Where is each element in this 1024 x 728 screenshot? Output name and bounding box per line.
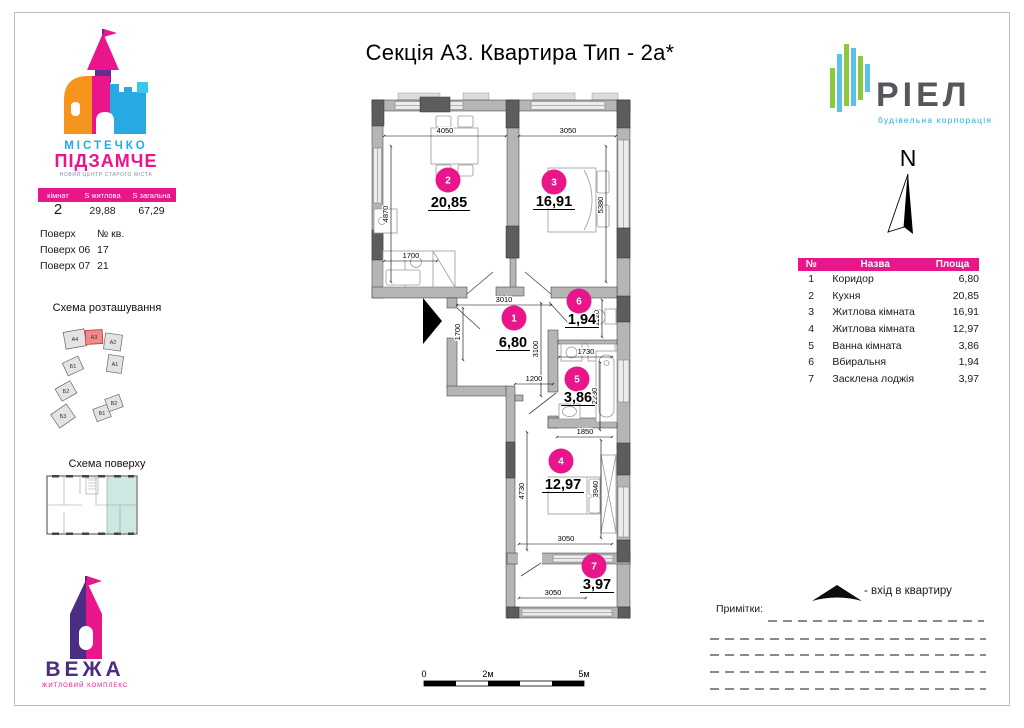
legend-header-num: №: [798, 258, 824, 271]
dim-label: 3010: [496, 295, 513, 304]
pillow: [597, 171, 609, 193]
block-label: В1: [99, 411, 106, 417]
room-legend-table: № Назва Площа 1Коридор6,80 2Кухня20,85 3…: [798, 258, 979, 387]
podzamche-tagline: НОВИЙ ЦЕНТР СТАРОГО МІСТА: [30, 172, 182, 178]
dim-label: 3940: [591, 481, 600, 498]
dim-label: 1200: [526, 374, 543, 383]
notes-line: [710, 671, 986, 673]
vezha-name: ВЕЖА: [28, 658, 142, 682]
riel-logo: РІЕЛ будівельна корпорація: [826, 42, 1001, 137]
scale-2m: 2м: [482, 669, 493, 679]
dim-label: 4050: [437, 126, 454, 135]
summary-header-rooms: кімнат: [38, 191, 78, 200]
block-label: А1: [112, 362, 119, 368]
scale-5m: 5м: [578, 669, 589, 679]
chair: [458, 116, 473, 127]
svg-text:1: 1: [511, 314, 517, 325]
legend-header-name: Назва: [824, 258, 926, 271]
floor-scheme-label: Схема поверху: [32, 458, 182, 470]
svg-text:7: 7: [591, 562, 597, 573]
floor-7-label: Поверх 07: [40, 260, 97, 272]
legend-row: 7Засклена лоджія3,97: [798, 371, 979, 388]
svg-text:6: 6: [576, 297, 582, 308]
block-label: А4: [72, 337, 79, 343]
chair: [458, 165, 473, 176]
pillow: [589, 497, 600, 513]
legend-row: 3Житлова кімната16,91: [798, 304, 979, 321]
block-label: Б2: [63, 389, 70, 395]
room-3-area: 16,91: [536, 194, 572, 210]
block-label: А3: [91, 335, 98, 341]
summary-header-total: S загальна: [127, 191, 176, 200]
notes-line: [768, 620, 984, 622]
floors-header-row: Поверх № кв.: [40, 228, 180, 240]
room-1-area: 6,80: [499, 335, 527, 351]
floors-row: Поверх 07 21: [40, 260, 180, 272]
north-compass: N: [882, 142, 934, 242]
svg-text:2: 2: [445, 176, 451, 187]
notes-line: [710, 688, 986, 690]
scale-bar: 0 2м 5м: [421, 669, 589, 686]
dim-label: 5380: [596, 197, 605, 214]
dim-label: 4730: [517, 483, 526, 500]
floors-row: Поверх 06 17: [40, 244, 180, 256]
entrance-arrow-icon: [810, 583, 864, 603]
entrance-legend-label: - вхід в квартиру: [864, 585, 952, 597]
entrance-arrow-icon: [423, 298, 442, 344]
summary-table-values: 2 29,88 67,29: [38, 201, 176, 219]
room-2-area: 20,85: [431, 195, 467, 211]
podzamche-brand-line2: ПІДЗАМЧЕ: [34, 151, 178, 172]
location-scheme-label: Схема розташування: [32, 302, 182, 314]
legend-row: 5Ванна кімната3,86: [798, 337, 979, 354]
block-label: А2: [110, 340, 117, 346]
page-title: Секція А3. Квартира Тип - 2а*: [300, 40, 740, 66]
riel-name: РІЕЛ: [876, 76, 971, 114]
summary-total-value: 67,29: [127, 205, 176, 217]
svg-text:3: 3: [551, 178, 557, 189]
notes-line: [710, 638, 986, 640]
dim-label: 3050: [560, 126, 577, 135]
scale-0: 0: [421, 669, 426, 679]
legend-header-row: № Назва Площа: [798, 258, 979, 271]
summary-living-value: 29,88: [78, 205, 127, 217]
apartment-floorplan: 4050 3050 4870 5380 1700 3010 1700 3100 …: [362, 90, 652, 690]
floors-header-floor: Поверх: [40, 228, 97, 240]
dim-label: 1850: [577, 427, 594, 436]
floorplan-sheet: Секція А3. Квартира Тип - 2а* МІСТЕЧКО П…: [0, 0, 1024, 728]
room-6-area: 1,94: [568, 312, 596, 328]
vezha-tower-logo-icon: [62, 574, 110, 660]
loggia-door-opening: [518, 552, 542, 565]
svg-text:4: 4: [558, 457, 564, 468]
block-label: Б3: [60, 414, 67, 420]
dim-label: 1700: [453, 324, 462, 341]
dim-label: 1700: [403, 251, 420, 260]
dim-label: 3050: [558, 534, 575, 543]
notes-line: [710, 654, 986, 656]
notes-label: Примітки:: [716, 603, 763, 615]
floor-6-apt: 17: [97, 244, 147, 256]
floors-header-apt: № кв.: [97, 228, 147, 240]
floor-scheme-map: [44, 472, 140, 544]
summary-rooms-value: 2: [38, 201, 78, 218]
block-label: Б1: [70, 364, 77, 370]
dim-label: 3100: [531, 341, 540, 358]
vezha-subtitle: ЖИТЛОВИЙ КОМПЛЕКС: [28, 683, 142, 689]
toilet: [605, 309, 616, 324]
legend-row: 2Кухня20,85: [798, 288, 979, 305]
riel-stripes-icon: [830, 44, 870, 112]
legend-row: 4Житлова кімната12,97: [798, 321, 979, 338]
riel-subtitle: будівельна корпорація: [878, 115, 992, 125]
summary-table-header: кімнат S житлова S загальна: [38, 188, 176, 202]
legend-row: 1Коридор6,80: [798, 271, 979, 288]
dim-label: 1730: [578, 347, 595, 356]
svg-text:5: 5: [574, 375, 580, 386]
room-4-area: 12,97: [545, 477, 581, 493]
podzamche-castle-logo-icon: [54, 26, 158, 138]
room-7-area: 3,97: [583, 577, 611, 593]
block-label: В2: [111, 401, 118, 407]
location-scheme-map: А4 А3 А2 А1 Б1 Б2 Б3 В1 В2: [46, 320, 130, 432]
dim-label: 4870: [381, 206, 390, 223]
floor-6-label: Поверх 06: [40, 244, 97, 256]
dim-label: 3050: [545, 588, 562, 597]
room-5-area: 3,86: [564, 390, 592, 406]
north-label: N: [900, 145, 917, 171]
legend-row: 6Вбиральня1,94: [798, 354, 979, 371]
legend-header-area: Площа: [926, 258, 979, 271]
summary-header-living: S житлова: [78, 191, 127, 200]
floor-7-apt: 21: [97, 260, 147, 272]
